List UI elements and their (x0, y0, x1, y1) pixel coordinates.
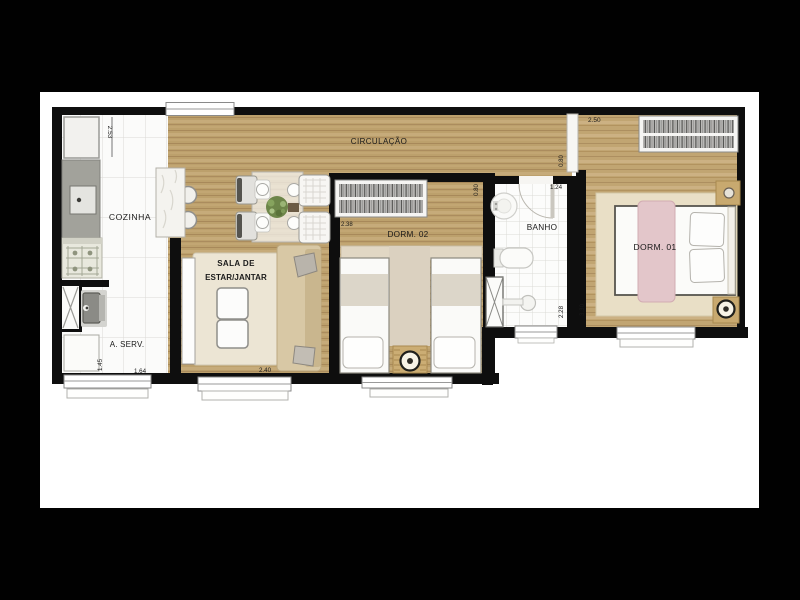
svg-text:ESTAR/JANTAR: ESTAR/JANTAR (205, 273, 267, 282)
svg-text:DORM. 02: DORM. 02 (387, 230, 428, 239)
svg-text:2.40: 2.40 (259, 367, 272, 374)
svg-text:2.28: 2.28 (558, 305, 565, 318)
svg-text:0.80: 0.80 (559, 155, 565, 167)
svg-text:SALA DE: SALA DE (217, 259, 255, 268)
svg-text:1.64: 1.64 (134, 368, 147, 375)
svg-text:COZINHA: COZINHA (109, 212, 151, 222)
svg-text:2.50: 2.50 (588, 117, 601, 124)
svg-text:A. SERV.: A. SERV. (110, 340, 145, 349)
svg-text:1.45: 1.45 (97, 358, 104, 371)
svg-text:DORM. 01: DORM. 01 (634, 242, 677, 252)
svg-text:BANHO: BANHO (527, 223, 558, 232)
svg-text:CIRCULAÇÃO: CIRCULAÇÃO (351, 137, 407, 146)
svg-text:2.38: 2.38 (341, 222, 353, 228)
svg-text:3.30: 3.30 (579, 303, 586, 316)
svg-text:0.80: 0.80 (474, 184, 480, 196)
svg-text:1.24: 1.24 (550, 184, 563, 191)
